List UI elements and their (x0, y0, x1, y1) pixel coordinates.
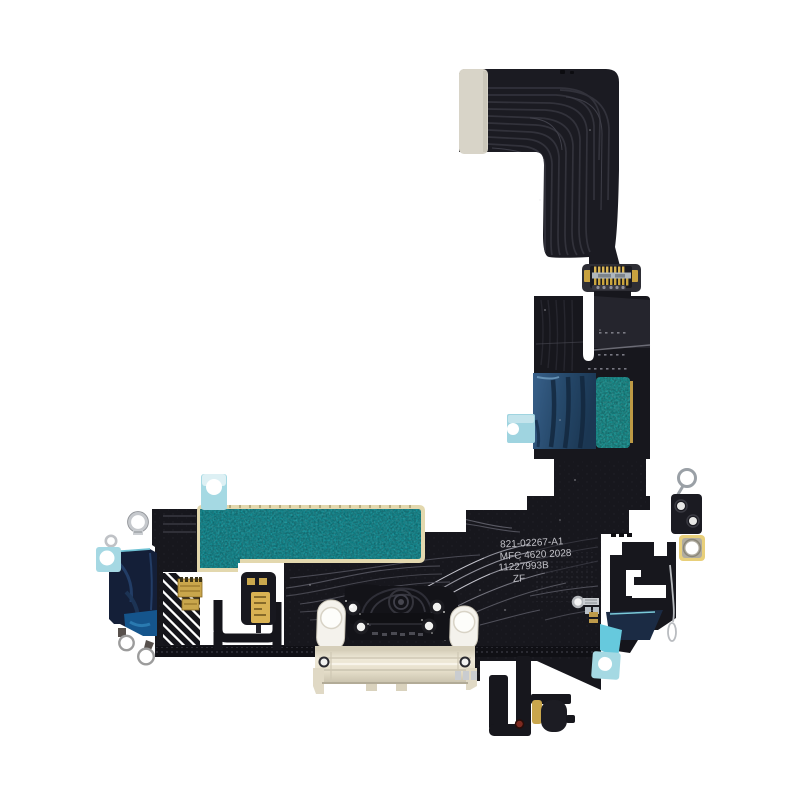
svg-text:ZF: ZF (513, 573, 526, 585)
